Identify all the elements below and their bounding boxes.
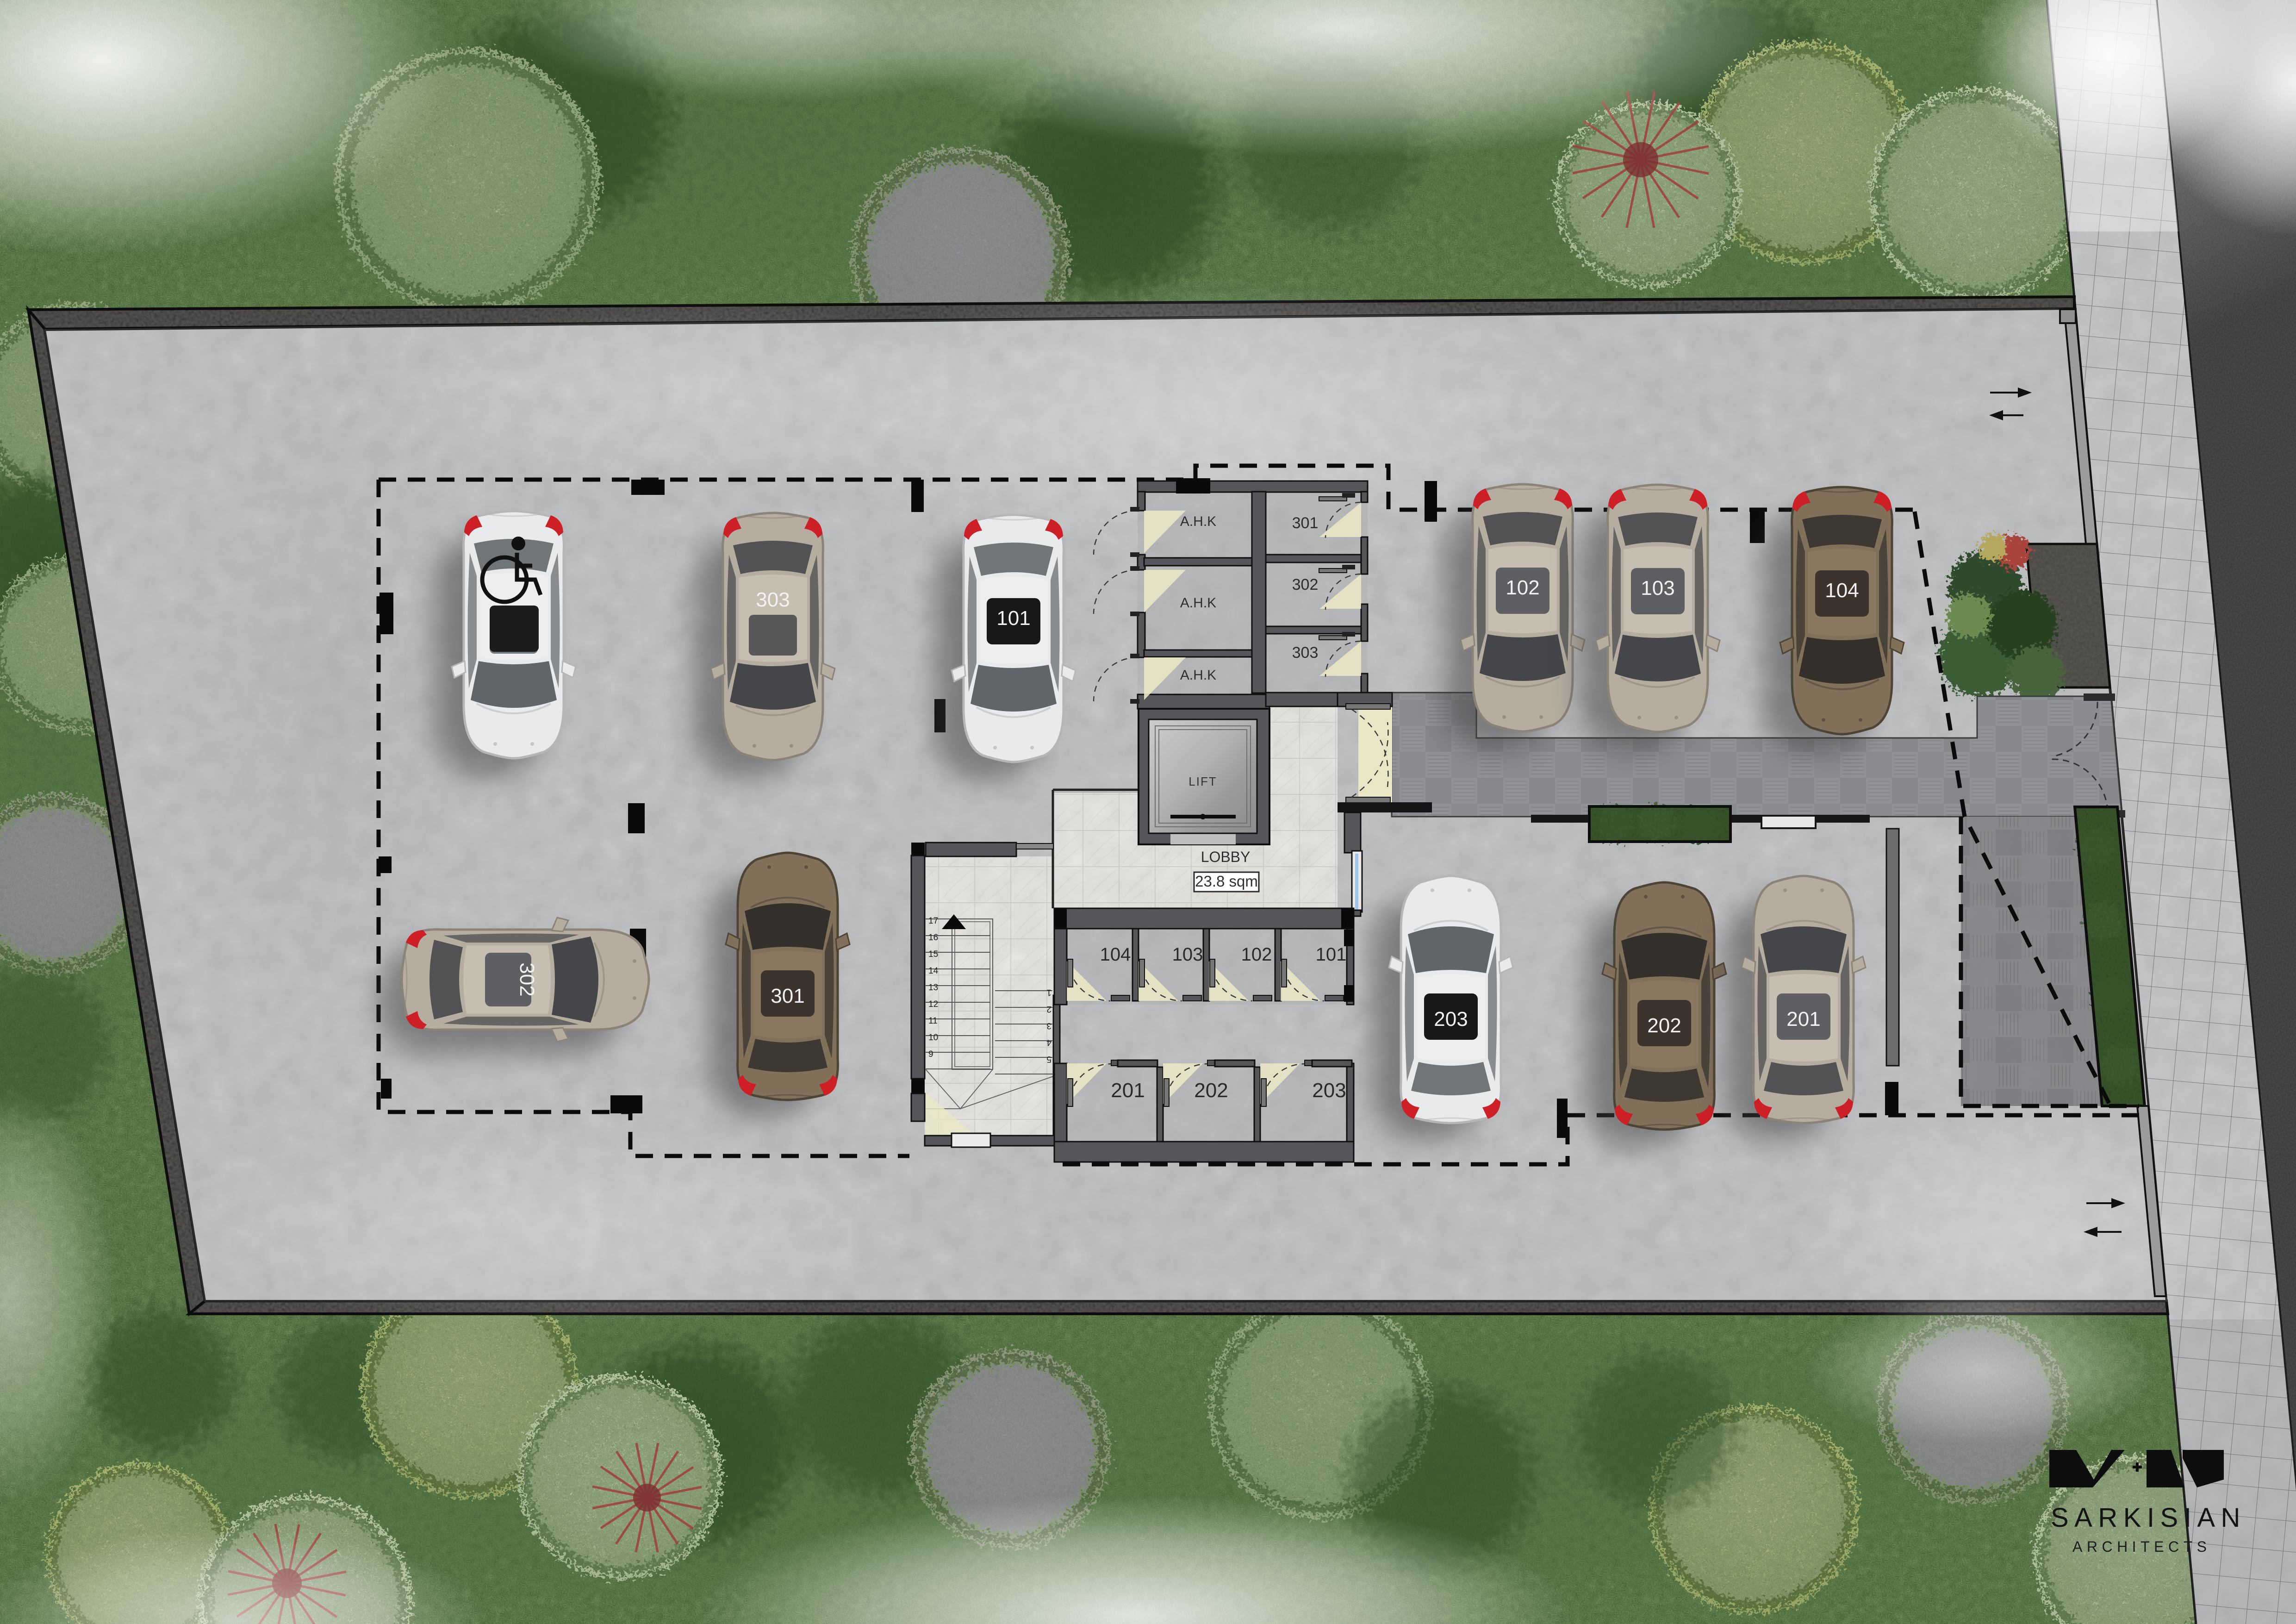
svg-text:302: 302: [516, 962, 538, 996]
svg-text:10: 10: [928, 1033, 938, 1043]
svg-text:A.H.K: A.H.K: [1180, 668, 1216, 683]
svg-text:104: 104: [1825, 579, 1859, 602]
svg-text:104: 104: [1100, 944, 1131, 965]
svg-text:13: 13: [928, 983, 938, 993]
svg-text:16: 16: [928, 933, 938, 943]
svg-text:2: 2: [1046, 1004, 1052, 1014]
svg-text:4: 4: [1046, 1037, 1052, 1047]
svg-text:11: 11: [928, 1016, 938, 1026]
svg-text:SARKISIAN: SARKISIAN: [2051, 1503, 2246, 1533]
svg-text:9: 9: [928, 1049, 933, 1059]
svg-text:303: 303: [756, 588, 790, 611]
svg-text:101: 101: [1316, 944, 1347, 965]
svg-text:1: 1: [1046, 987, 1052, 997]
svg-text:A.H.K: A.H.K: [1180, 514, 1216, 529]
svg-text:23.8 sqm: 23.8 sqm: [1195, 873, 1258, 890]
svg-text:201: 201: [1111, 1079, 1145, 1102]
svg-text:103: 103: [1172, 944, 1203, 965]
svg-text:3: 3: [1046, 1021, 1052, 1031]
svg-text:303: 303: [1292, 644, 1319, 662]
svg-text:102: 102: [1506, 576, 1539, 599]
svg-text:5: 5: [1046, 1054, 1052, 1064]
svg-text:203: 203: [1434, 1008, 1468, 1031]
svg-text:301: 301: [771, 985, 804, 1007]
svg-text:12: 12: [928, 999, 938, 1009]
svg-text:203: 203: [1312, 1079, 1346, 1102]
svg-text:103: 103: [1641, 577, 1674, 600]
svg-text:302: 302: [1292, 576, 1319, 593]
svg-text:LIFT: LIFT: [1188, 775, 1217, 788]
svg-text:102: 102: [1241, 944, 1272, 965]
svg-text:301: 301: [1292, 514, 1319, 532]
svg-text:17: 17: [928, 916, 938, 926]
svg-text:14: 14: [928, 966, 939, 976]
svg-text:ARCHITECTS: ARCHITECTS: [2072, 1538, 2211, 1555]
svg-text:201: 201: [1786, 1008, 1820, 1031]
svg-text:202: 202: [1194, 1079, 1228, 1102]
svg-text:15: 15: [928, 949, 938, 959]
svg-text:A.H.K: A.H.K: [1180, 595, 1216, 611]
svg-text:202: 202: [1647, 1014, 1681, 1037]
svg-text:101: 101: [996, 607, 1030, 630]
svg-text:LOBBY: LOBBY: [1201, 849, 1251, 865]
